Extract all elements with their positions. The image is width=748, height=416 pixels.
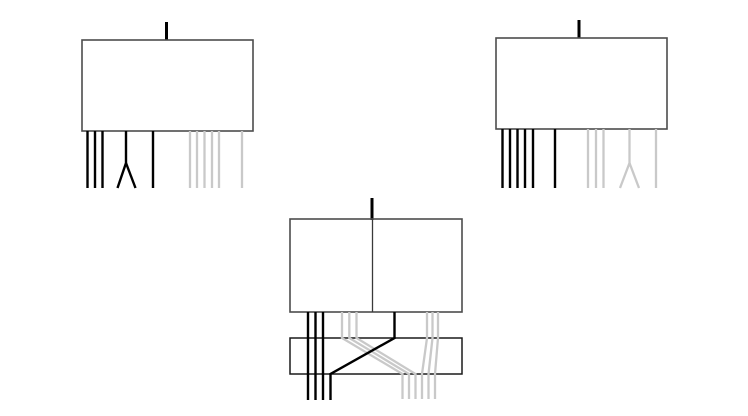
bottom-gray-left-fiber-2 [349,312,409,399]
bottom-gray-right-fiber-3 [435,312,438,399]
top-right-gray-fork-branch-leg [630,163,640,188]
top-left-fork-stem-leg [118,131,127,188]
top-left-fork-branch-leg [126,163,136,188]
diagram-stage [0,0,748,416]
bottom-merge-module [290,198,462,400]
top-right-gray-fork-stem-leg [620,129,630,188]
top-right-box [496,38,667,129]
top-left-module [82,22,253,188]
bottom-gray-right-fiber-1 [422,312,427,399]
top-left-box [82,40,253,131]
diagram-canvas [0,0,748,416]
bottom-gray-right-fiber-2 [429,312,433,399]
top-right-module [496,20,667,188]
bottom-box [290,219,462,312]
